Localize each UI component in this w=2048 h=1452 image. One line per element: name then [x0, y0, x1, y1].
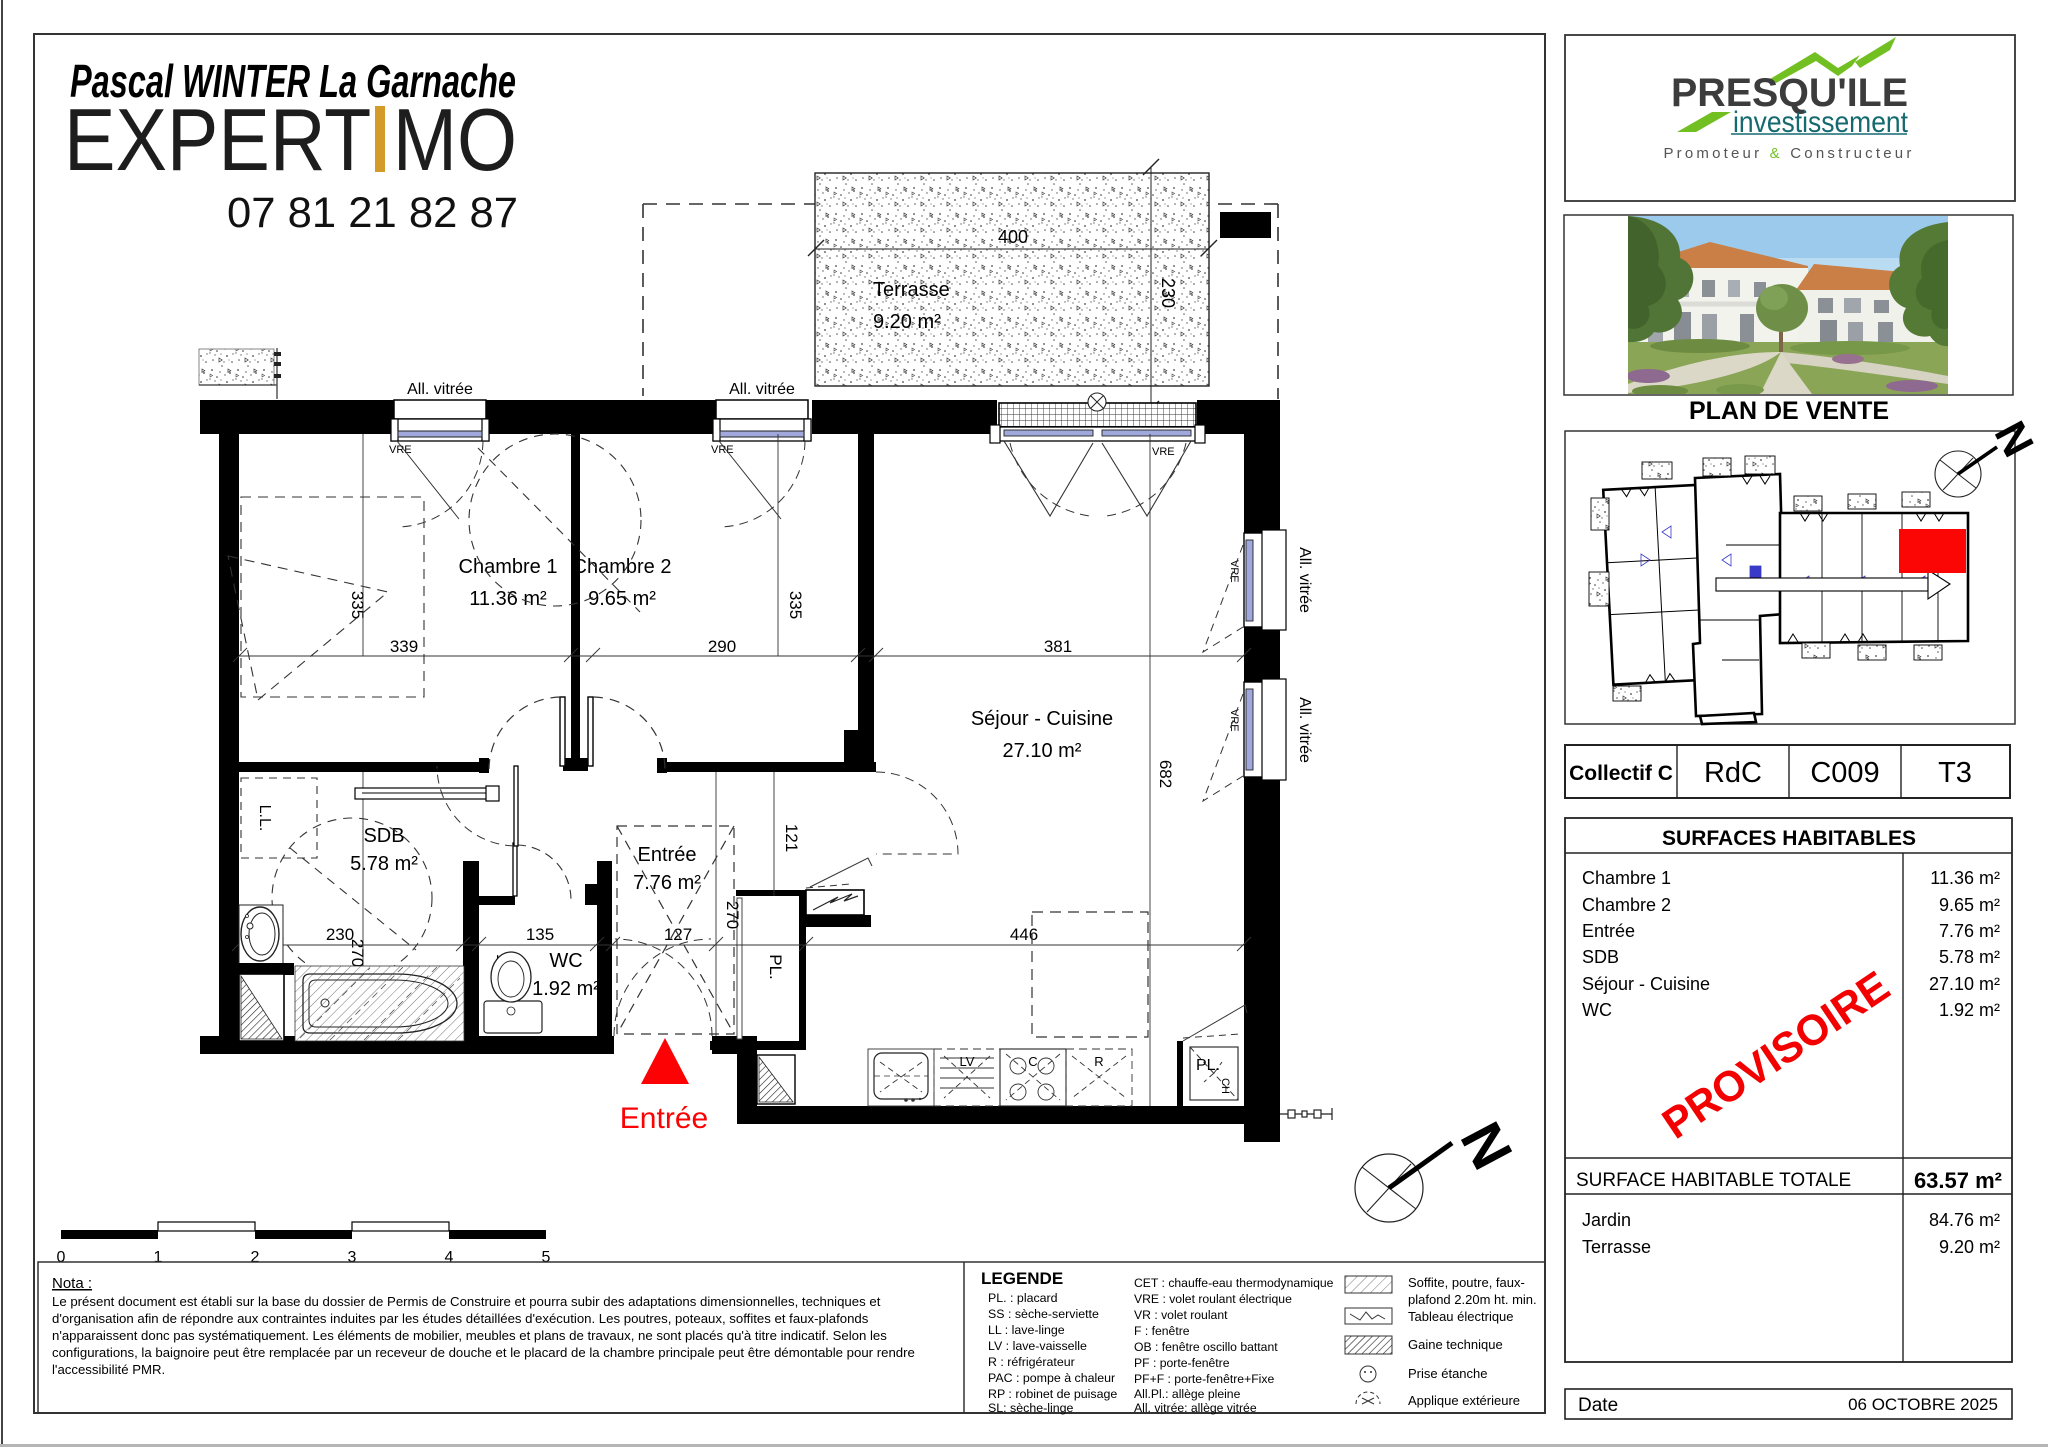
- svg-text:Le présent document est établi: Le présent document est établi sur la ba…: [52, 1294, 881, 1309]
- svg-text:9.20 m²: 9.20 m²: [1939, 1237, 2000, 1257]
- svg-text:All. vitrée: All. vitrée: [1296, 697, 1313, 763]
- svg-text:C009: C009: [1810, 757, 1879, 789]
- svg-text:Nota :: Nota :: [52, 1275, 92, 1292]
- svg-text:Chambre 1: Chambre 1: [1582, 868, 1671, 888]
- svg-text:7.76 m²: 7.76 m²: [1939, 921, 2000, 941]
- svg-text:PAC : pompe à chaleur: PAC : pompe à chaleur: [988, 1371, 1115, 1385]
- svg-text:335: 335: [348, 591, 367, 619]
- svg-text:27.10 m²: 27.10 m²: [1003, 740, 1082, 762]
- svg-text:63.57 m²: 63.57 m²: [1914, 1168, 2002, 1193]
- svg-text:PL.: PL.: [766, 954, 785, 980]
- svg-text:5.78 m²: 5.78 m²: [350, 853, 418, 875]
- svg-text:PF+F : porte-fenêtre+Fixe: PF+F : porte-fenêtre+Fixe: [1134, 1372, 1274, 1386]
- svg-text:1.92 m²: 1.92 m²: [532, 978, 600, 1000]
- svg-text:l'accessibilité PMR.: l'accessibilité PMR.: [52, 1362, 165, 1377]
- svg-text:290: 290: [708, 637, 736, 656]
- svg-text:All. vitrée: All. vitrée: [407, 381, 473, 398]
- svg-text:VRE: VRE: [1228, 709, 1240, 732]
- svg-text:VRE: VRE: [1152, 446, 1175, 458]
- svg-text:LL : lave-linge: LL : lave-linge: [988, 1323, 1065, 1337]
- svg-text:06 OCTOBRE 2025: 06 OCTOBRE 2025: [1848, 1395, 1998, 1414]
- svg-text:LEGENDE: LEGENDE: [981, 1269, 1063, 1288]
- svg-text:682: 682: [1156, 760, 1175, 788]
- svg-text:PL.: PL.: [1196, 1057, 1220, 1074]
- svg-text:121: 121: [782, 824, 801, 852]
- svg-text:R : réfrigérateur: R : réfrigérateur: [988, 1355, 1075, 1369]
- svg-text:400: 400: [998, 227, 1028, 247]
- svg-text:WC: WC: [1582, 1000, 1612, 1020]
- svg-text:Entrée: Entrée: [638, 844, 697, 866]
- svg-text:9.65 m²: 9.65 m²: [588, 588, 656, 610]
- svg-text:3: 3: [348, 1249, 357, 1266]
- svg-text:C: C: [1028, 1054, 1037, 1069]
- svg-text:Entrée: Entrée: [1582, 921, 1635, 941]
- svg-text:7.76 m²: 7.76 m²: [633, 872, 701, 894]
- svg-text:WC: WC: [549, 950, 582, 972]
- svg-text:27.10 m²: 27.10 m²: [1929, 974, 2000, 994]
- svg-text:381: 381: [1044, 637, 1072, 656]
- svg-text:Chambre 2: Chambre 2: [573, 556, 672, 578]
- svg-text:11.36 m²: 11.36 m²: [469, 588, 547, 610]
- svg-text:SL: sèche-linge: SL: sèche-linge: [988, 1401, 1074, 1415]
- svg-text:230: 230: [326, 925, 354, 944]
- svg-text:270: 270: [723, 901, 742, 929]
- svg-text:VR : volet roulant: VR : volet roulant: [1134, 1308, 1228, 1322]
- svg-text:Chambre 1: Chambre 1: [459, 556, 558, 578]
- svg-text:Date: Date: [1578, 1395, 1618, 1416]
- svg-text:LV : lave-vaisselle: LV : lave-vaisselle: [988, 1339, 1087, 1353]
- svg-text:Promoteur & Constructeur: Promoteur & Constructeur: [1663, 145, 1914, 162]
- svg-text:n'apparaissent donc pas systém: n'apparaissent donc pas systématiquement…: [52, 1328, 887, 1343]
- svg-text:11.36 m²: 11.36 m²: [1930, 868, 2000, 888]
- svg-text:plafond 2.20m ht. min.: plafond 2.20m ht. min.: [1408, 1292, 1537, 1307]
- svg-text:0: 0: [57, 1249, 66, 1266]
- svg-text:configurations, la baignoire p: configurations, la baignoire peut être r…: [52, 1345, 915, 1360]
- svg-text:VRE : volet roulant électrique: VRE : volet roulant électrique: [1134, 1292, 1292, 1306]
- svg-text:07 81 21 82 87: 07 81 21 82 87: [227, 189, 518, 237]
- svg-text:9.65 m²: 9.65 m²: [1939, 895, 2000, 915]
- svg-text:135: 135: [526, 925, 554, 944]
- svg-text:SURFACES HABITABLES: SURFACES HABITABLES: [1662, 827, 1916, 850]
- svg-text:84.76 m²: 84.76 m²: [1929, 1210, 2000, 1230]
- svg-text:Tableau électrique: Tableau électrique: [1408, 1309, 1514, 1324]
- svg-text:F : fenêtre: F : fenêtre: [1134, 1324, 1190, 1338]
- svg-text:PLAN DE VENTE: PLAN DE VENTE: [1689, 397, 1889, 425]
- svg-text:335: 335: [786, 591, 805, 619]
- svg-text:SDB: SDB: [363, 825, 404, 847]
- svg-text:Séjour - Cuisine: Séjour - Cuisine: [971, 708, 1113, 730]
- svg-text:5: 5: [542, 1249, 551, 1266]
- svg-text:SURFACE HABITABLE TOTALE: SURFACE HABITABLE TOTALE: [1576, 1170, 1851, 1191]
- svg-text:1: 1: [154, 1249, 163, 1266]
- svg-text:446: 446: [1010, 925, 1038, 944]
- svg-text:SS : sèche-serviette: SS : sèche-serviette: [988, 1307, 1099, 1321]
- svg-text:Gaine technique: Gaine technique: [1408, 1337, 1503, 1352]
- svg-text:All. vitrée: allège vitrée: All. vitrée: allège vitrée: [1134, 1401, 1257, 1415]
- svg-text:Collectif C: Collectif C: [1569, 762, 1673, 785]
- svg-text:2: 2: [251, 1249, 260, 1266]
- svg-text:1.92 m²: 1.92 m²: [1939, 1000, 2000, 1020]
- svg-text:Soffite, poutre, faux-: Soffite, poutre, faux-: [1408, 1275, 1525, 1290]
- svg-text:9.20 m²: 9.20 m²: [873, 311, 941, 333]
- svg-text:Jardin: Jardin: [1582, 1210, 1631, 1230]
- svg-text:LV: LV: [960, 1054, 975, 1069]
- svg-text:Entrée: Entrée: [620, 1102, 708, 1135]
- svg-text:CH: CH: [1219, 1078, 1231, 1094]
- svg-text:R: R: [1094, 1054, 1103, 1069]
- svg-text:All. vitrée: All. vitrée: [1296, 547, 1313, 613]
- svg-text:339: 339: [390, 637, 418, 656]
- svg-text:T3: T3: [1938, 757, 1972, 789]
- svg-text:Prise étanche: Prise étanche: [1408, 1366, 1488, 1381]
- svg-text:Applique extérieure: Applique extérieure: [1408, 1393, 1520, 1408]
- svg-text:EXPERTIMO: EXPERTIMO: [64, 90, 517, 189]
- svg-text:VRE: VRE: [1228, 560, 1240, 583]
- svg-text:All.Pl.: allège pleine: All.Pl.: allège pleine: [1134, 1387, 1241, 1401]
- svg-text:RP : robinet de puisage: RP : robinet de puisage: [988, 1387, 1117, 1401]
- svg-text:Chambre 2: Chambre 2: [1582, 895, 1671, 915]
- svg-text:Terrasse: Terrasse: [873, 279, 950, 301]
- svg-text:5.78 m²: 5.78 m²: [1939, 947, 2000, 967]
- svg-text:OB : fenêtre oscillo battant: OB : fenêtre oscillo battant: [1134, 1340, 1278, 1354]
- svg-text:4: 4: [445, 1249, 454, 1266]
- svg-text:PL. : placard: PL. : placard: [988, 1291, 1058, 1305]
- svg-text:PF : porte-fenêtre: PF : porte-fenêtre: [1134, 1356, 1230, 1370]
- svg-text:Terrasse: Terrasse: [1582, 1237, 1651, 1257]
- svg-text:Séjour - Cuisine: Séjour - Cuisine: [1582, 974, 1710, 994]
- svg-text:d'organisation afin de répondr: d'organisation afin de répondre aux cont…: [52, 1311, 869, 1326]
- svg-text:RdC: RdC: [1704, 757, 1762, 789]
- svg-text:All. vitrée: All. vitrée: [729, 381, 795, 398]
- svg-text:SDB: SDB: [1582, 947, 1619, 967]
- svg-text:CET : chauffe-eau thermodynami: CET : chauffe-eau thermodynamique: [1134, 1276, 1334, 1290]
- svg-text:230: 230: [1158, 278, 1178, 308]
- svg-text:L.L.: L.L.: [256, 805, 273, 832]
